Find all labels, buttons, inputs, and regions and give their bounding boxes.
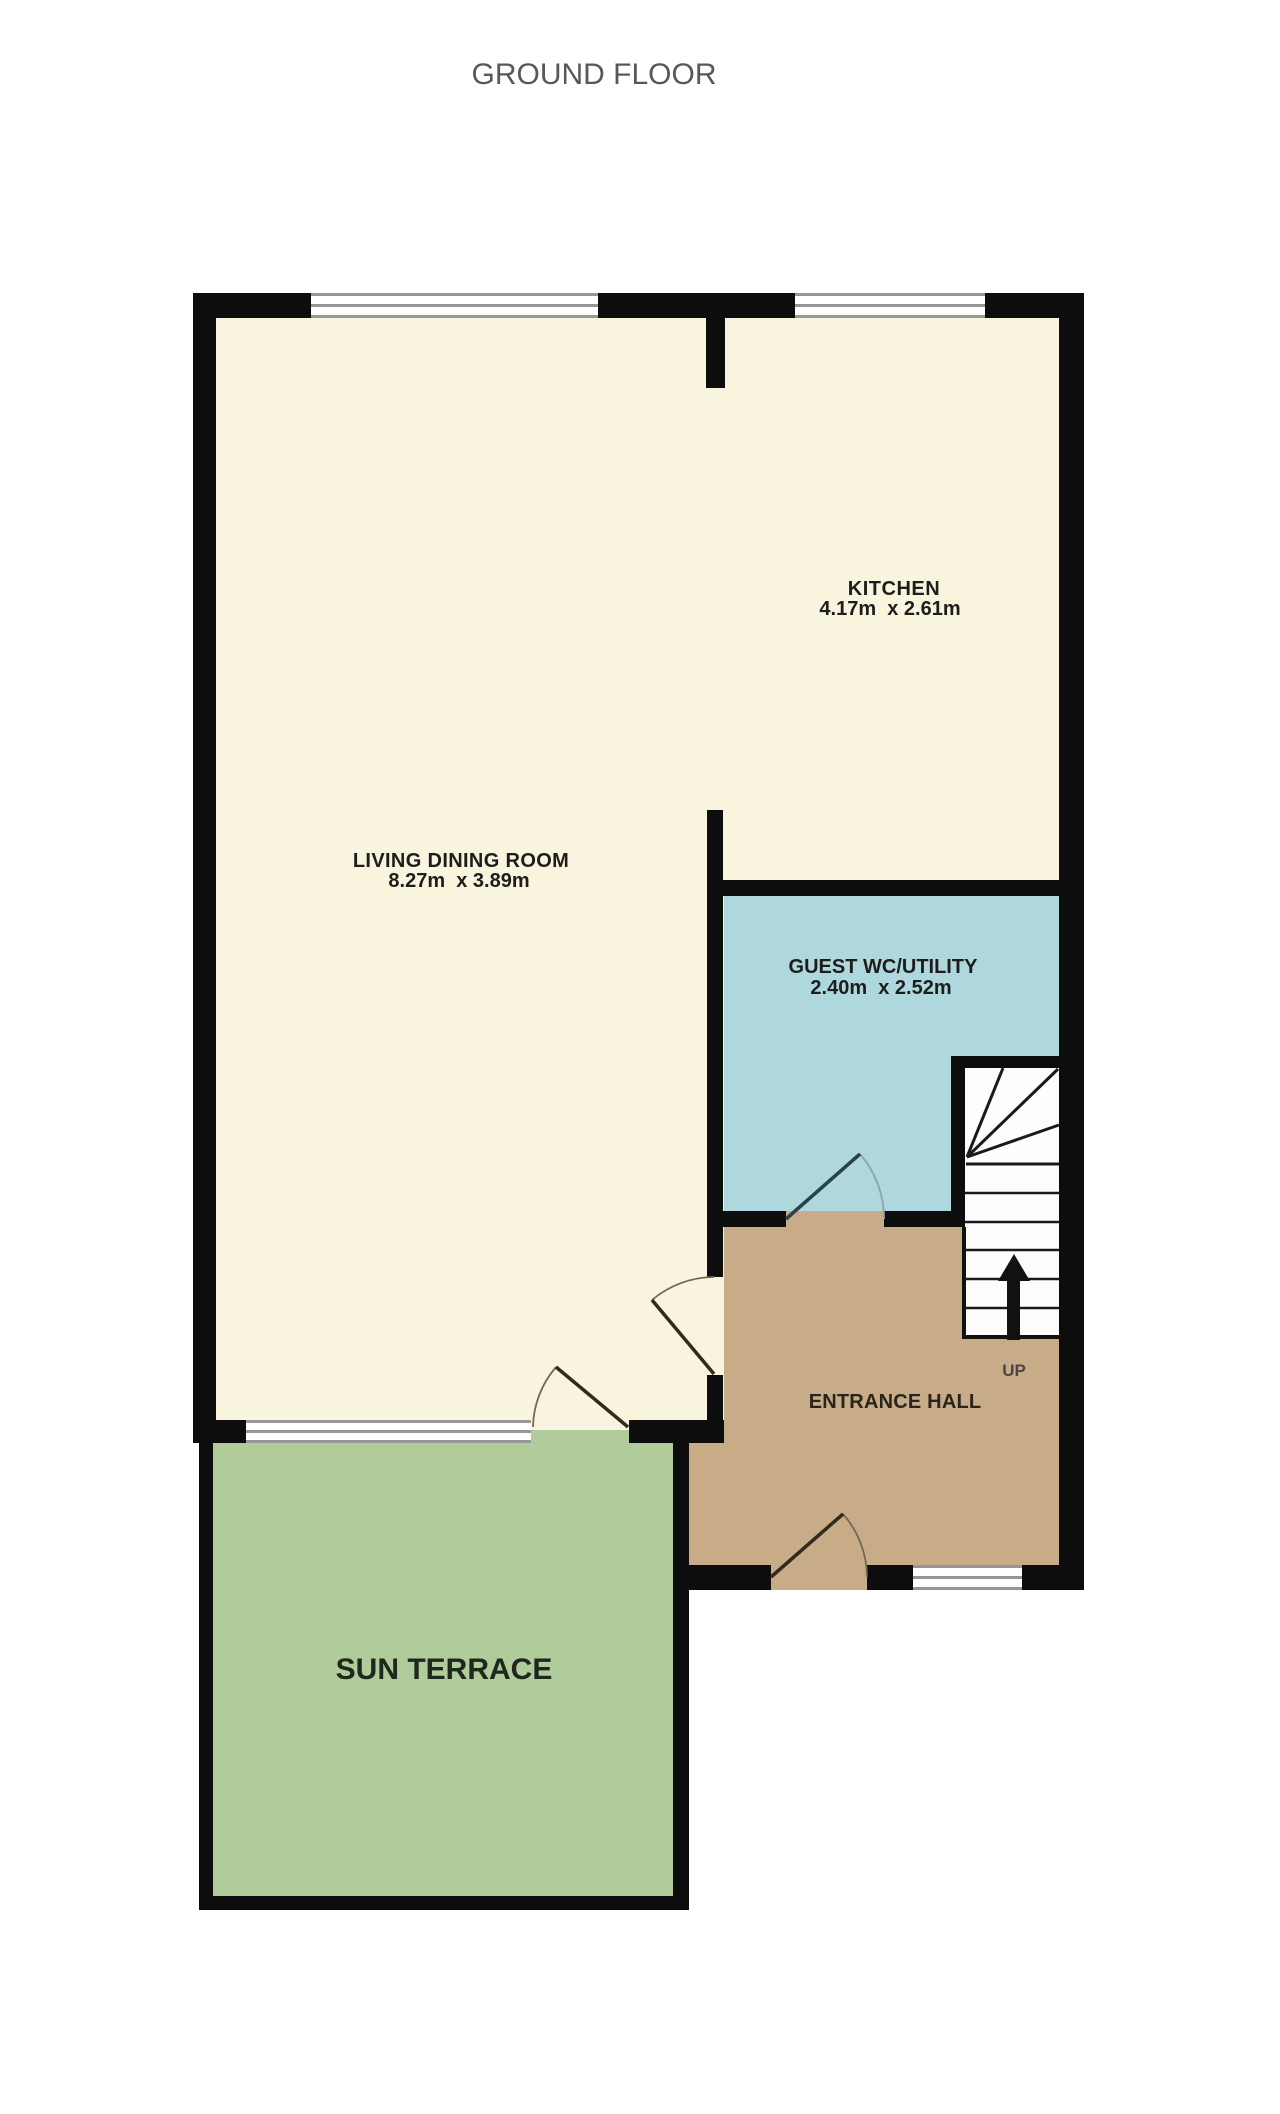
svg-text:LIVING DINING ROOM: LIVING DINING ROOM: [353, 850, 569, 872]
svg-text:GUEST WC/UTILITY: GUEST WC/UTILITY: [789, 956, 979, 978]
svg-text:KITCHEN: KITCHEN: [848, 578, 940, 600]
svg-text:SUN TERRACE: SUN TERRACE: [336, 1653, 553, 1686]
svg-text:GROUND FLOOR: GROUND FLOOR: [471, 58, 716, 91]
svg-text:UP: UP: [1002, 1361, 1026, 1380]
svg-text:2.40m x 2.52m: 2.40m x 2.52m: [810, 977, 951, 999]
svg-text:8.27m x 3.89m: 8.27m x 3.89m: [388, 870, 529, 892]
svg-text:4.17m x 2.61m: 4.17m x 2.61m: [819, 598, 960, 620]
svg-text:ENTRANCE HALL: ENTRANCE HALL: [809, 1391, 982, 1413]
